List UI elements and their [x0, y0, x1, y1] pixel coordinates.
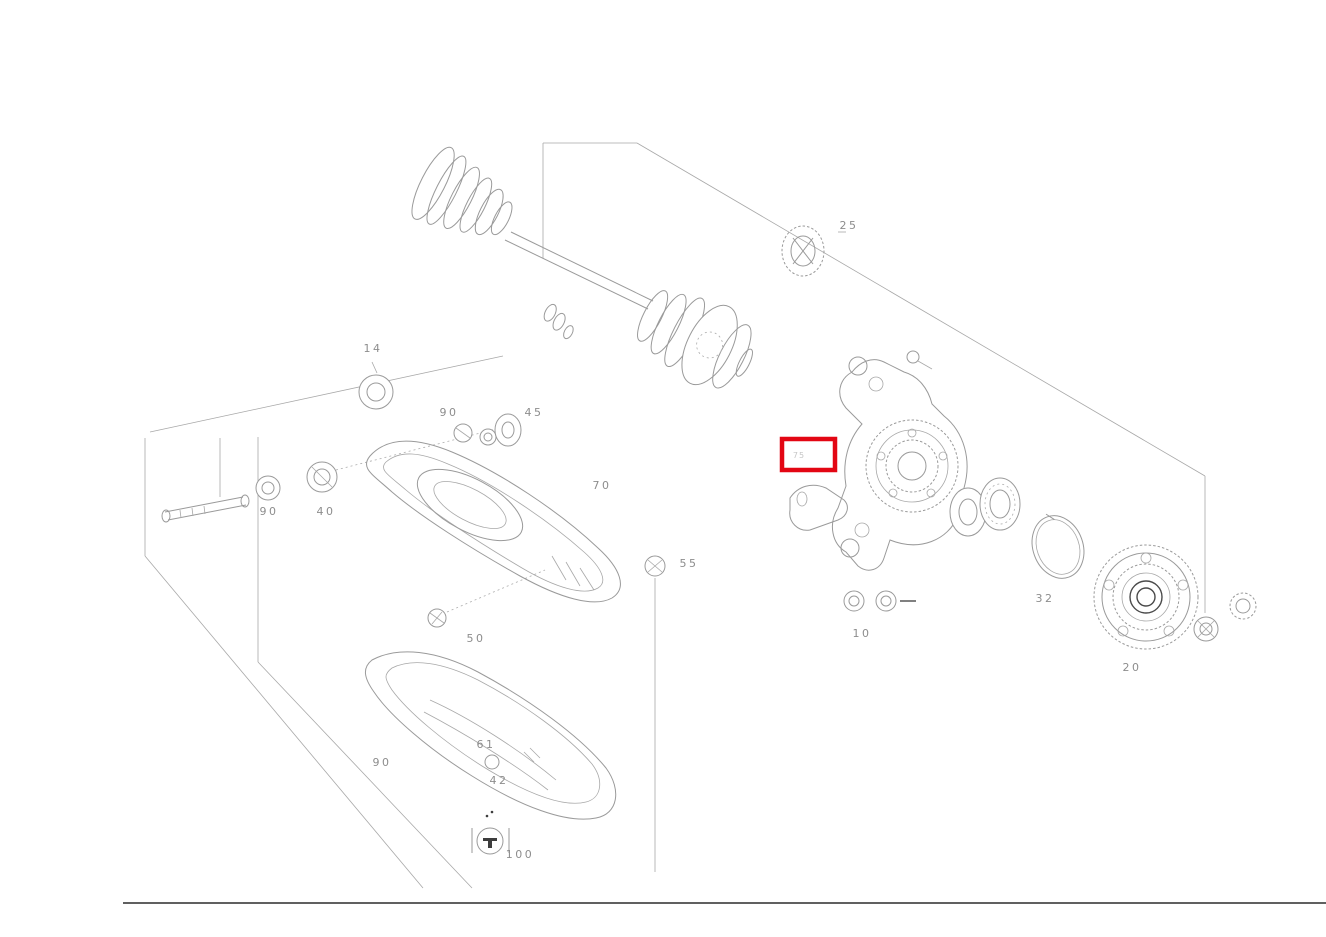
part-callouts: 25149045904070555010322090614210075: [260, 219, 1142, 861]
part-callout-90[interactable]: 90: [373, 756, 392, 769]
part-callout-32[interactable]: 32: [1036, 592, 1055, 605]
nut-washer-cluster: [454, 414, 521, 446]
exploded-parts-diagram: 25149045904070555010322090614210075: [0, 0, 1326, 937]
part-callout-61[interactable]: 61: [477, 738, 496, 751]
knuckle-washers: [844, 591, 916, 611]
bolt-50: [428, 609, 446, 627]
lock-washer: [1230, 593, 1256, 619]
wheel-hub-20: [1094, 545, 1198, 649]
snap-ring-32: [1023, 506, 1093, 586]
part-callout-40[interactable]: 40: [317, 505, 336, 518]
selected-part-highlight[interactable]: [782, 439, 835, 470]
part-callout-70[interactable]: 70: [593, 479, 612, 492]
part-callout-42[interactable]: 42: [490, 774, 509, 787]
wheel-bearings: [950, 478, 1020, 536]
part-callout-90[interactable]: 90: [260, 505, 279, 518]
spring-link-arm: [366, 441, 620, 602]
stud-bolt-left: [162, 495, 249, 522]
parts-diagram-page: 25149045904070555010322090614210075: [0, 0, 1326, 937]
part-callout-90[interactable]: 90: [440, 406, 459, 419]
washer-90-left: [256, 476, 280, 500]
carrier-bracket: [790, 485, 848, 530]
part-callout-45[interactable]: 45: [525, 406, 544, 419]
hub-nut: [1194, 617, 1218, 641]
backing-plate: [365, 652, 615, 819]
wheel-carrier-knuckle: [832, 351, 967, 570]
part-callout-100[interactable]: 100: [506, 848, 535, 861]
part-callout-20[interactable]: 20: [1123, 661, 1142, 674]
part-callout-10[interactable]: 10: [853, 627, 872, 640]
axle-shaft: [505, 232, 653, 340]
outer-cv-boot: [404, 142, 526, 257]
construction-lines: [145, 143, 1205, 888]
part-callout-25[interactable]: 25: [840, 219, 859, 232]
part-callout-14[interactable]: 14: [364, 342, 383, 355]
washer-40: [307, 462, 337, 492]
part-callout-55[interactable]: 55: [680, 557, 699, 570]
inner-cv-joint: [625, 274, 768, 404]
clip-100: [472, 811, 509, 854]
part-callout-75[interactable]: 75: [793, 451, 805, 460]
part-callout-50[interactable]: 50: [467, 632, 486, 645]
bolt-55: [645, 556, 665, 576]
washer-14: [359, 362, 393, 409]
